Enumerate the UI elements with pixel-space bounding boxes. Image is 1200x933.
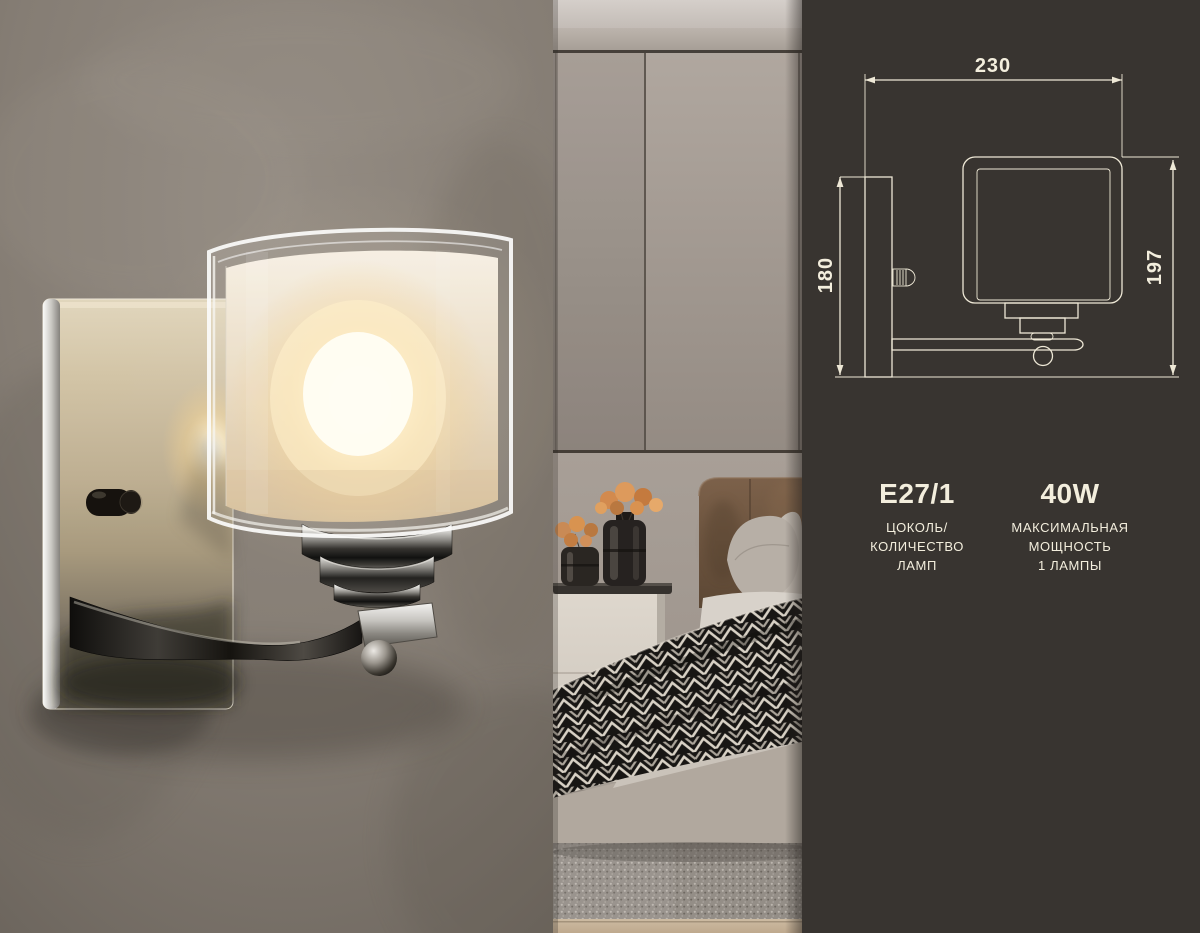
spec-power-caption-line-3: 1 ЛАМПЫ bbox=[995, 556, 1145, 575]
dim-total-height: 197 bbox=[1122, 157, 1179, 375]
spec-power-value: 40W bbox=[995, 478, 1145, 510]
spec-power-caption-line-1: МАКСИМАЛЬНАЯ bbox=[995, 518, 1145, 537]
dim-back-height: 180 bbox=[815, 177, 865, 375]
diagram-holder-step2 bbox=[1020, 318, 1065, 333]
diagram-shade-inner bbox=[977, 169, 1110, 300]
dimension-diagram: 230 180 197 bbox=[802, 0, 1200, 420]
info-panel: 230 180 197 bbox=[802, 0, 1200, 933]
spec-socket-caption: ЦОКОЛЬ/ КОЛИЧЕСТВО ЛАМП bbox=[842, 518, 992, 575]
spec-socket-caption-line-1: ЦОКОЛЬ/ bbox=[842, 518, 992, 537]
dim-width-label: 230 bbox=[975, 55, 1011, 77]
product-card: 230 180 197 bbox=[0, 0, 1200, 933]
diagram-holder-step1 bbox=[1005, 303, 1078, 318]
spec-socket-caption-line-3: ЛАМП bbox=[842, 556, 992, 575]
ceiling bbox=[553, 0, 802, 53]
interior-photo bbox=[553, 0, 802, 933]
wood-floor bbox=[553, 919, 802, 933]
vase-large bbox=[603, 512, 646, 586]
edge-vignette bbox=[785, 0, 802, 933]
dim-back-height-label: 180 bbox=[815, 257, 837, 293]
spec-list: E27/1 ЦОКОЛЬ/ КОЛИЧЕСТВО ЛАМП 40W МАКСИМ… bbox=[802, 478, 1200, 575]
product-photo bbox=[0, 0, 553, 933]
sconce-switch-knob bbox=[86, 489, 142, 516]
spec-socket: E27/1 ЦОКОЛЬ/ КОЛИЧЕСТВО ЛАМП bbox=[842, 478, 992, 575]
rug bbox=[553, 842, 802, 921]
spec-power-caption: МАКСИМАЛЬНАЯ МОЩНОСТЬ 1 ЛАМПЫ bbox=[995, 518, 1145, 575]
wall-panels bbox=[553, 53, 802, 453]
dim-width: 230 bbox=[865, 55, 1122, 177]
lamp-outline bbox=[865, 157, 1122, 377]
sconce-glass-shade bbox=[209, 230, 511, 540]
product-photo-image bbox=[0, 0, 553, 933]
diagram-shade-outer bbox=[963, 157, 1122, 303]
interior-photo-image bbox=[553, 0, 802, 933]
spec-socket-value: E27/1 bbox=[842, 478, 992, 510]
diagram-screw-knob bbox=[893, 269, 915, 286]
diagram-wall-plate bbox=[865, 177, 892, 377]
vase-small bbox=[561, 547, 599, 586]
spec-power-caption-line-2: МОЩНОСТЬ bbox=[995, 537, 1145, 556]
spec-socket-caption-line-2: КОЛИЧЕСТВО bbox=[842, 537, 992, 556]
diagram-arm bbox=[892, 339, 1083, 350]
dim-total-height-label: 197 bbox=[1144, 249, 1166, 285]
sconce-ball-finial bbox=[361, 640, 397, 676]
spec-power: 40W МАКСИМАЛЬНАЯ МОЩНОСТЬ 1 ЛАМПЫ bbox=[995, 478, 1145, 575]
left-edge-shade bbox=[553, 0, 558, 933]
